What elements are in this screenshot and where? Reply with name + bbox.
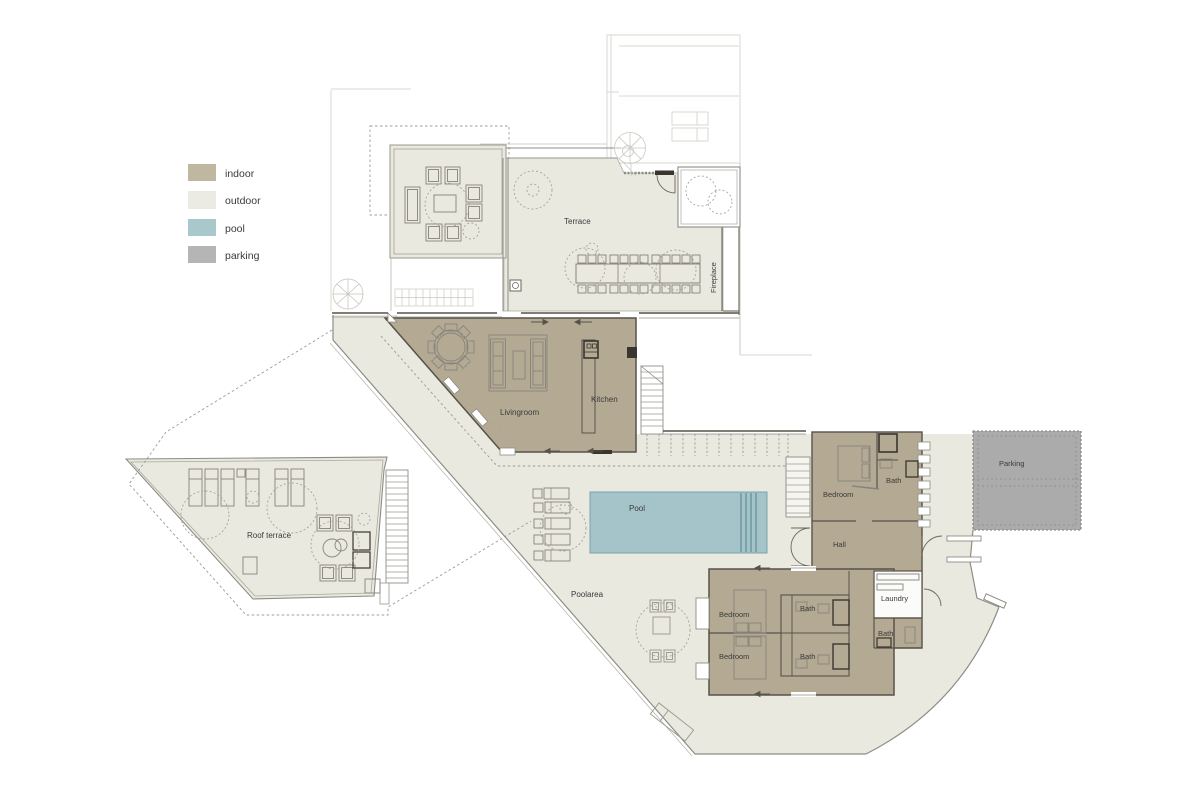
svg-text:Bedroom: Bedroom xyxy=(719,652,749,661)
svg-text:Fireplace: Fireplace xyxy=(709,262,718,293)
svg-text:Bath: Bath xyxy=(886,476,901,485)
svg-text:Kitchen: Kitchen xyxy=(591,395,618,404)
svg-text:Laundry: Laundry xyxy=(881,594,908,603)
svg-text:Bedroom: Bedroom xyxy=(719,610,749,619)
svg-text:Pool: Pool xyxy=(629,504,645,513)
svg-text:Bath: Bath xyxy=(800,652,815,661)
svg-text:Bath: Bath xyxy=(878,629,893,638)
svg-text:outdoor: outdoor xyxy=(225,195,261,207)
svg-text:Bedroom: Bedroom xyxy=(823,490,853,499)
svg-text:Livingroom: Livingroom xyxy=(500,408,539,417)
svg-text:Parking: Parking xyxy=(999,459,1024,468)
svg-text:parking: parking xyxy=(225,250,260,262)
svg-text:Roof terrace: Roof terrace xyxy=(247,531,292,540)
svg-text:Bath: Bath xyxy=(800,604,815,613)
svg-text:Poolarea: Poolarea xyxy=(571,590,604,599)
svg-text:indoor: indoor xyxy=(225,168,255,180)
svg-text:pool: pool xyxy=(225,223,245,235)
svg-text:Terrace: Terrace xyxy=(564,217,591,226)
svg-text:Hall: Hall xyxy=(833,540,846,549)
